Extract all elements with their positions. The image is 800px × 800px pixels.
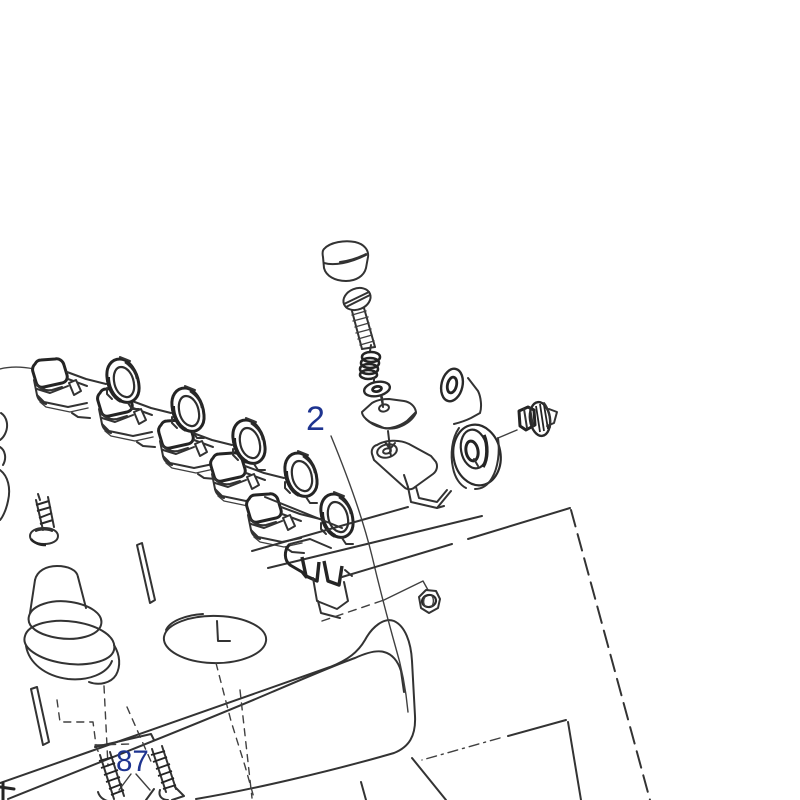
svg-text:2: 2 (306, 400, 325, 438)
svg-text:87: 87 (116, 745, 149, 778)
